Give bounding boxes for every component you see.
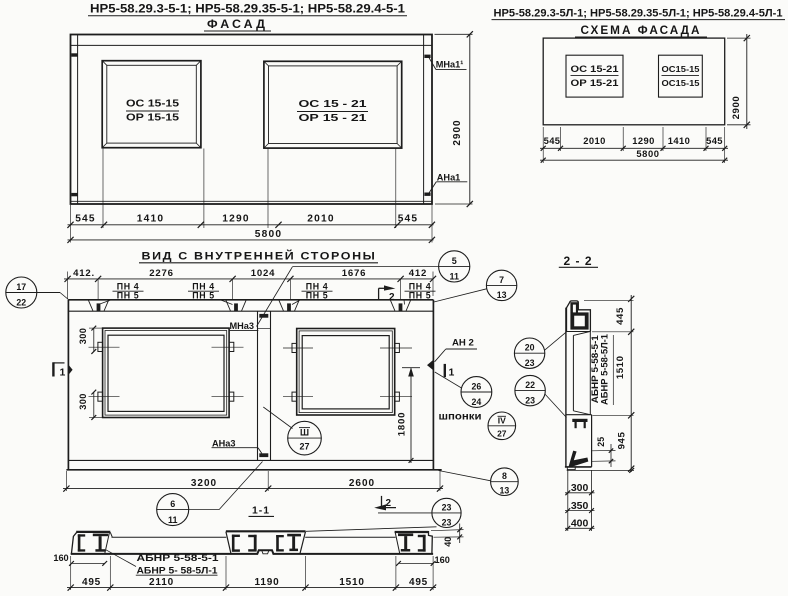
svg-text:1190: 1190 [255,577,280,588]
svg-text:3200: 3200 [191,478,217,489]
svg-text:300: 300 [78,328,88,345]
svg-text:IV: IV [498,415,506,425]
svg-text:40: 40 [443,537,453,547]
svg-text:1676: 1676 [342,268,367,279]
svg-text:25: 25 [596,437,606,447]
svg-text:Ш: Ш [300,427,309,437]
svg-text:27: 27 [299,442,309,452]
svg-text:1410: 1410 [668,135,690,146]
svg-text:545: 545 [706,135,723,146]
svg-text:23: 23 [525,395,535,405]
svg-text:300: 300 [78,393,88,410]
svg-text:шпонки: шпонки [439,412,482,423]
svg-text:13: 13 [500,486,510,496]
svg-text:400: 400 [571,518,589,529]
svg-text:2900: 2900 [731,96,742,120]
svg-text:5800: 5800 [636,148,659,159]
svg-text:350: 350 [571,501,589,512]
svg-text:1-1: 1-1 [252,505,270,516]
svg-text:НР5-58.29.3-5-1; НР5-58.29.35-: НР5-58.29.3-5-1; НР5-58.29.35-5-1; НР5-5… [90,2,405,16]
svg-text:ПН 5: ПН 5 [192,290,214,300]
svg-text:ОР 15 - 21: ОР 15 - 21 [299,113,368,124]
svg-text:22: 22 [16,298,26,308]
svg-text:23: 23 [442,517,452,527]
svg-text:1800: 1800 [397,412,408,437]
svg-text:412.: 412. [73,268,95,279]
svg-text:11: 11 [168,515,178,525]
svg-text:АНа3: АНа3 [212,438,236,448]
svg-text:2600: 2600 [349,478,375,489]
svg-text:8: 8 [502,471,507,481]
svg-text:2900: 2900 [452,119,463,145]
svg-text:ОС 15-15: ОС 15-15 [126,99,180,110]
svg-text:7: 7 [499,275,504,285]
svg-text:ОС15-15: ОС15-15 [662,64,700,74]
svg-text:АНа1: АНа1 [437,173,461,183]
svg-text:ОС 15-21: ОС 15-21 [571,64,619,74]
svg-text:495: 495 [409,577,428,588]
svg-text:МНа1¹: МНа1¹ [436,60,464,70]
svg-text:160: 160 [53,553,68,563]
svg-text:1024: 1024 [251,268,276,279]
svg-text:МНа3: МНа3 [230,321,255,331]
svg-text:1290: 1290 [222,214,249,225]
svg-text:2: 2 [389,292,395,303]
svg-text:1: 1 [449,367,455,379]
svg-text:АН 2: АН 2 [452,338,474,349]
svg-text:1410: 1410 [137,214,164,225]
svg-text:2 - 2: 2 - 2 [563,254,592,268]
svg-text:20: 20 [525,343,535,353]
svg-text:АБНР 5-58-5-1: АБНР 5-58-5-1 [137,552,219,563]
svg-text:ОР 15-21: ОР 15-21 [571,78,619,88]
svg-text:СХЕМА ФАСАДА: СХЕМА ФАСАДА [581,23,702,37]
svg-text:2276: 2276 [149,268,174,279]
svg-text:13: 13 [497,290,507,300]
svg-text:1510: 1510 [339,577,364,588]
svg-text:300: 300 [571,483,589,494]
svg-text:26: 26 [472,381,482,391]
svg-text:11: 11 [449,272,459,282]
svg-text:2110: 2110 [149,577,174,588]
svg-text:445: 445 [615,307,626,325]
svg-text:27: 27 [497,428,507,438]
svg-text:ПН 5: ПН 5 [306,290,328,300]
svg-text:23: 23 [525,358,535,368]
svg-text:ПН 5: ПН 5 [409,290,431,300]
svg-text:2010: 2010 [307,214,334,225]
svg-text:ПН 5: ПН 5 [117,290,139,300]
svg-text:1290: 1290 [632,135,654,146]
svg-text:5: 5 [452,256,457,266]
svg-text:ОР 15-15: ОР 15-15 [126,113,180,124]
svg-text:160: 160 [435,555,450,565]
svg-text:НР5-58.29.3-5Л-1; НР5-58.29.35: НР5-58.29.3-5Л-1; НР5-58.29.35-5Л-1; НР5… [494,7,783,19]
svg-text:2: 2 [386,498,392,509]
svg-text:АБНР 5-58-5Л-1: АБНР 5-58-5Л-1 [599,334,609,405]
svg-text:545: 545 [544,135,561,146]
svg-text:24: 24 [472,397,482,407]
svg-text:545: 545 [398,214,419,225]
svg-text:17: 17 [16,282,26,292]
svg-text:АБНР 5-58-5-1: АБНР 5-58-5-1 [590,335,600,403]
svg-text:945: 945 [617,432,628,450]
svg-text:1: 1 [60,366,66,378]
svg-text:5800: 5800 [255,229,282,240]
svg-text:6: 6 [170,499,175,509]
svg-text:ОС15-15: ОС15-15 [662,78,700,88]
svg-text:ФАСАД: ФАСАД [207,17,268,31]
svg-text:АБНР 5- 58-5Л-1: АБНР 5- 58-5Л-1 [137,565,218,576]
svg-text:22: 22 [525,380,535,390]
svg-text:1510: 1510 [615,355,626,379]
svg-text:495: 495 [82,577,101,588]
svg-text:2010: 2010 [583,135,605,146]
svg-text:ОС 15 - 21: ОС 15 - 21 [299,99,368,110]
svg-text:ВИД С ВНУТРЕННЕЙ СТОРОНЫ: ВИД С ВНУТРЕННЕЙ СТОРОНЫ [142,250,377,263]
svg-text:412: 412 [409,268,427,279]
svg-text:545: 545 [75,214,96,225]
svg-text:23: 23 [442,502,452,512]
